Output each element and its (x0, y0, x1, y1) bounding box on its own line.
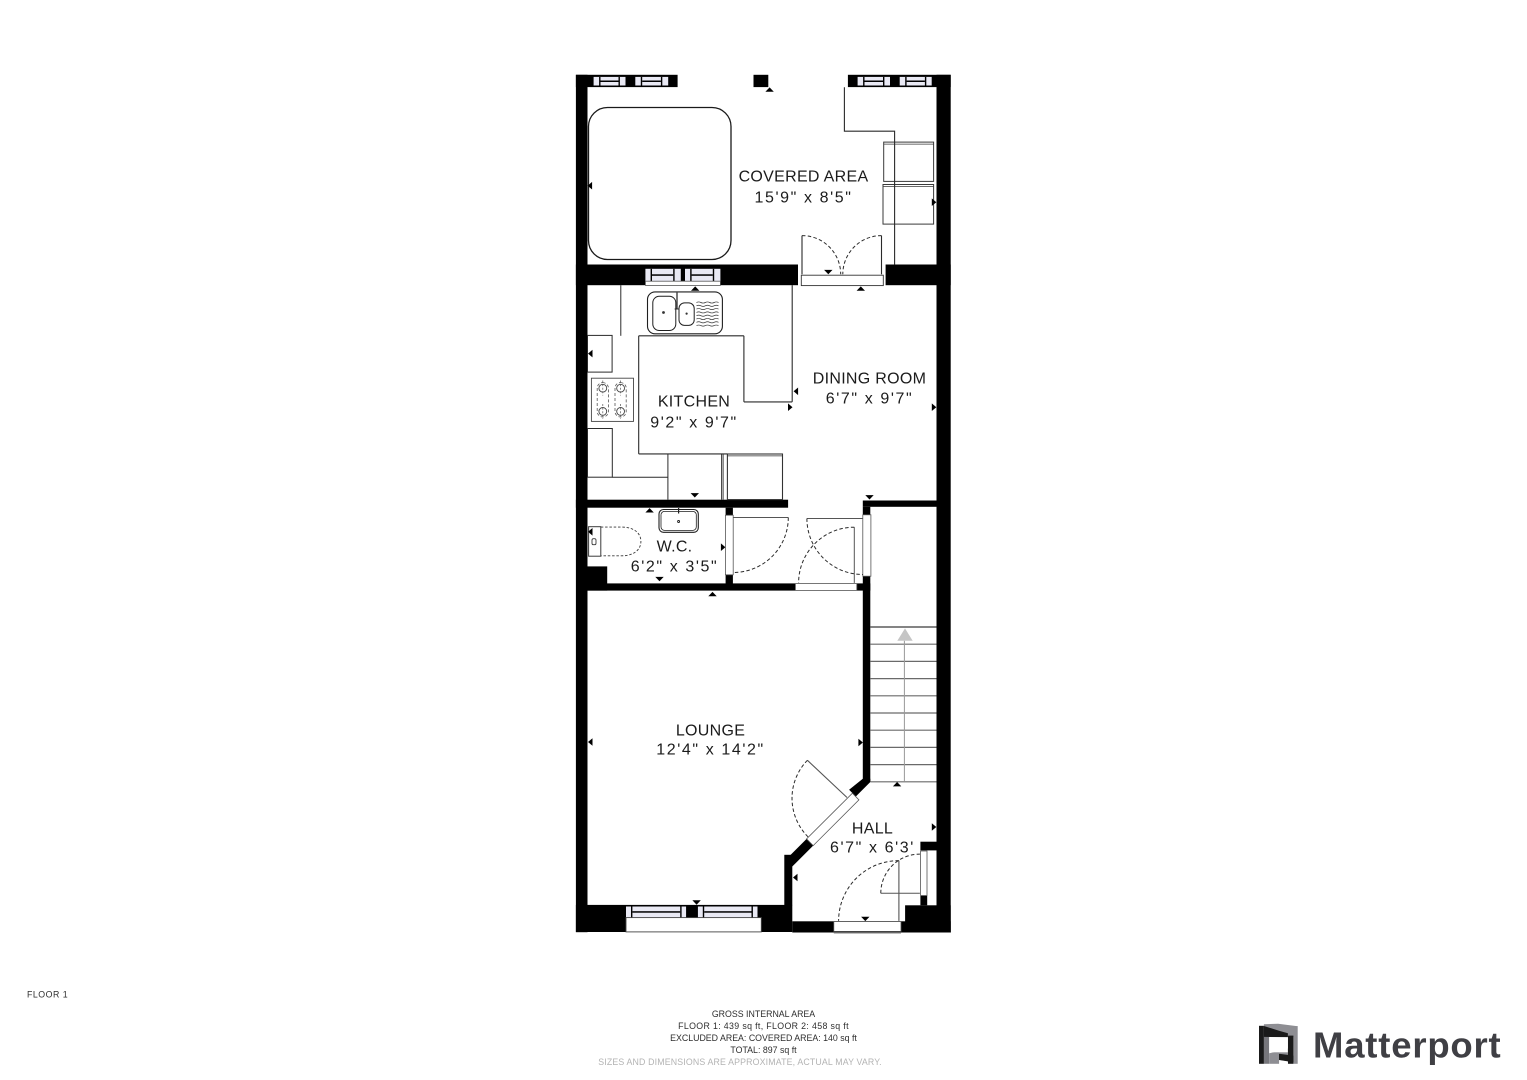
svg-text:W.C.: W.C. (657, 539, 693, 556)
svg-text:LOUNGE: LOUNGE (676, 723, 745, 740)
svg-text:SIZES AND DIMENSIONS ARE APPRO: SIZES AND DIMENSIONS ARE APPROXIMATE, AC… (598, 1057, 882, 1067)
svg-text:GROSS INTERNAL AREA: GROSS INTERNAL AREA (712, 1009, 815, 1019)
svg-text:HALL: HALL (852, 821, 893, 838)
svg-text:FLOOR 1: FLOOR 1 (27, 990, 68, 1000)
svg-text:EXCLUDED AREA: COVERED AREA: 1: EXCLUDED AREA: COVERED AREA: 140 sq ft (670, 1033, 857, 1043)
svg-text:KITCHEN: KITCHEN (658, 394, 730, 411)
svg-text:6'7" x 6'3': 6'7" x 6'3' (830, 840, 915, 857)
svg-text:FLOOR 1: 439 sq ft, FLOOR 2: 4: FLOOR 1: 439 sq ft, FLOOR 2: 458 sq ft (678, 1021, 849, 1031)
svg-text:12'4" x 14'2": 12'4" x 14'2" (656, 742, 765, 759)
svg-text:Matterport: Matterport (1313, 1025, 1501, 1066)
svg-text:6'7" x 9'7": 6'7" x 9'7" (826, 391, 914, 408)
svg-text:6'2" x 3'5": 6'2" x 3'5" (631, 559, 719, 576)
svg-text:COVERED AREA: COVERED AREA (739, 169, 869, 186)
svg-text:9'2" x 9'7": 9'2" x 9'7" (650, 415, 738, 432)
svg-text:TOTAL: 897 sq ft: TOTAL: 897 sq ft (730, 1045, 797, 1055)
svg-text:15'9" x 8'5": 15'9" x 8'5" (754, 190, 852, 207)
svg-text:DINING ROOM: DINING ROOM (813, 371, 927, 388)
